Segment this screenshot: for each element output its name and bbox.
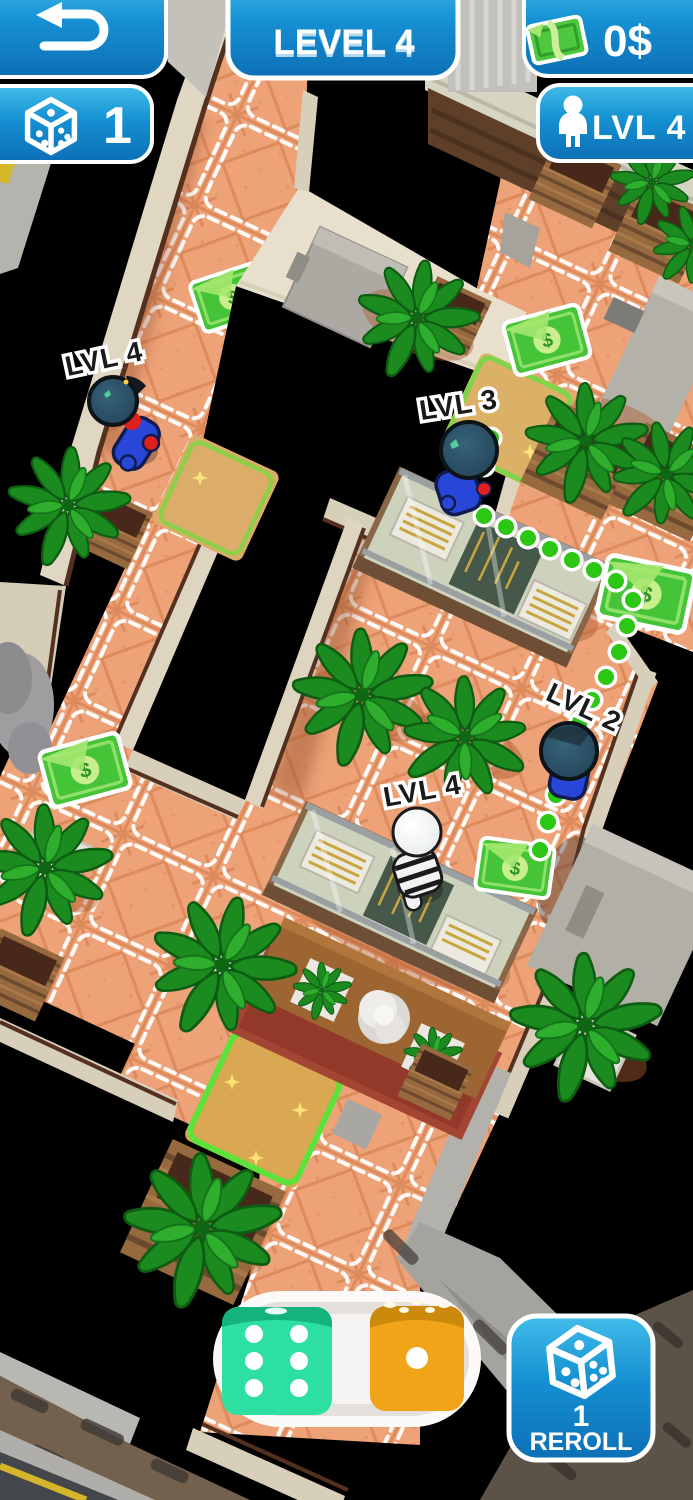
svg-text:REROLL: REROLL <box>530 1428 633 1456</box>
svg-text:LVL 4: LVL 4 <box>592 109 686 147</box>
svg-text:1: 1 <box>103 97 132 155</box>
svg-text:0$: 0$ <box>603 17 652 66</box>
svg-text:LEVEL 4: LEVEL 4 <box>273 23 415 62</box>
